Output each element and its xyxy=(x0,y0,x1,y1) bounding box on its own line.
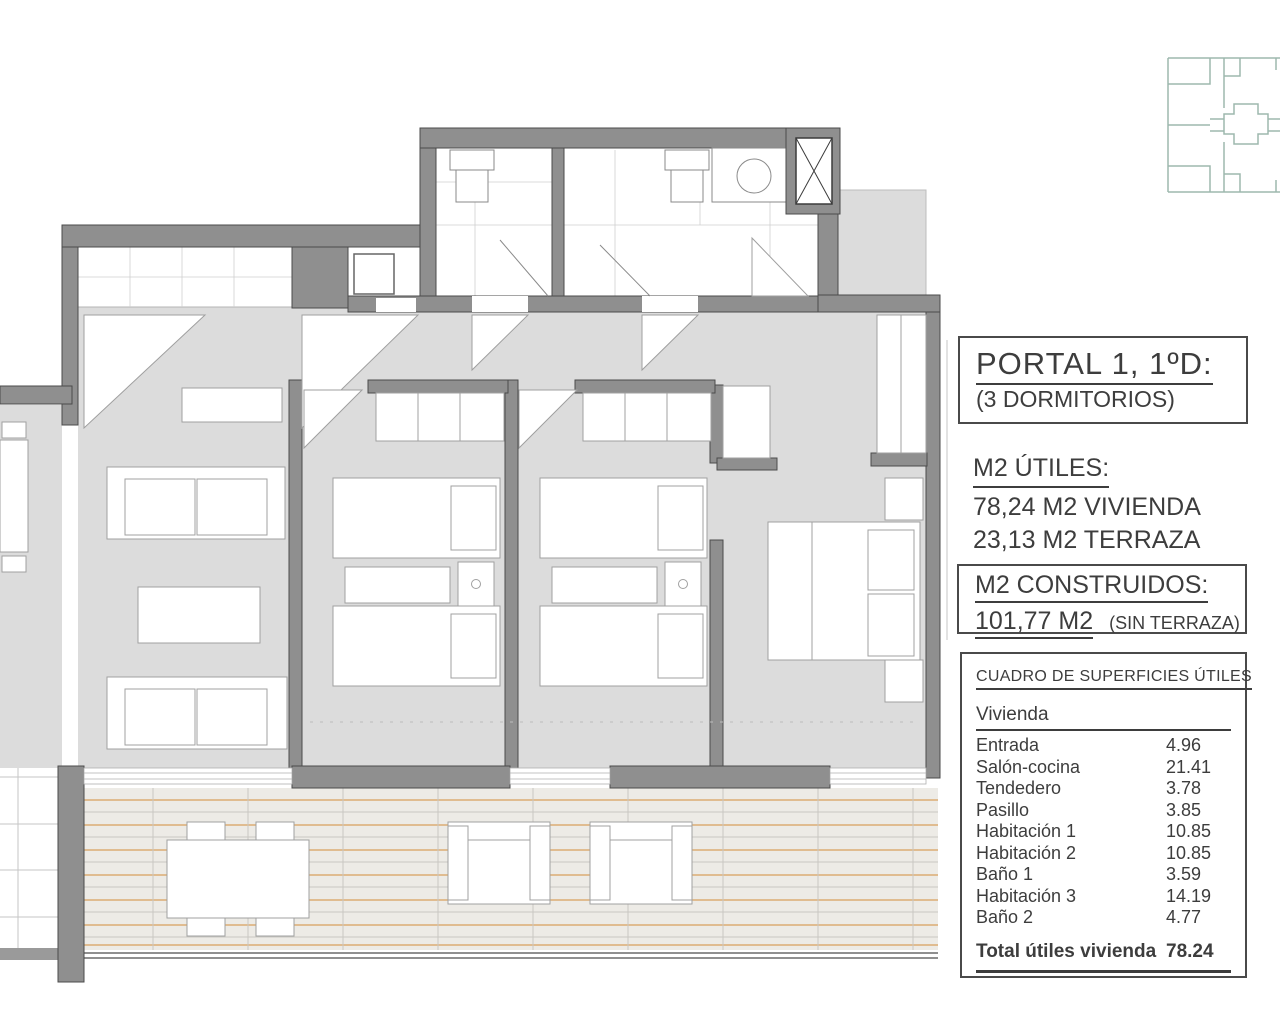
construidos-heading: M2 CONSTRUIDOS: xyxy=(975,571,1208,603)
plan-sheet: PORTAL 1, 1ºD: (3 DORMITORIOS) M2 ÚTILES… xyxy=(0,0,1280,1024)
area-row: Pasillo3.85 xyxy=(976,800,1231,822)
shaft-icon xyxy=(786,128,840,214)
area-row: Baño 24.77 xyxy=(976,907,1231,929)
areas-total-label: Total útiles vivienda xyxy=(976,941,1166,963)
construidos-box: M2 CONSTRUIDOS: 101,77 M2(SIN TERRAZA) xyxy=(957,564,1247,634)
key-plan-icon xyxy=(1168,58,1280,192)
title-box: PORTAL 1, 1ºD: (3 DORMITORIOS) xyxy=(958,336,1248,424)
areas-total-value: 78.24 xyxy=(1166,941,1214,963)
area-row: Baño 13.59 xyxy=(976,864,1231,886)
utiles-terraza: 23,13 M2 TERRAZA xyxy=(973,524,1201,557)
area-row: Habitación 110.85 xyxy=(976,821,1231,843)
utiles-block: M2 ÚTILES: 78,24 M2 VIVIENDA 23,13 M2 TE… xyxy=(973,452,1201,557)
construidos-note: (SIN TERRAZA) xyxy=(1109,613,1240,633)
construidos-value: 101,77 M2 xyxy=(975,607,1093,639)
area-row: Habitación 314.19 xyxy=(976,886,1231,908)
page-subtitle: (3 DORMITORIOS) xyxy=(976,384,1246,414)
area-row: Entrada4.96 xyxy=(976,735,1231,757)
areas-table-box: CUADRO DE SUPERFICIES ÚTILES Vivienda En… xyxy=(960,652,1247,978)
areas-table-group: Vivienda xyxy=(976,704,1231,731)
utiles-vivienda: 78,24 M2 VIVIENDA xyxy=(973,491,1201,524)
areas-table-heading: CUADRO DE SUPERFICIES ÚTILES xyxy=(976,668,1252,690)
terrace-railing xyxy=(84,953,938,958)
area-row: Salón-cocina21.41 xyxy=(976,757,1231,779)
utiles-heading: M2 ÚTILES: xyxy=(973,452,1109,488)
area-row: Tendedero3.78 xyxy=(976,778,1231,800)
page-title: PORTAL 1, 1ºD: xyxy=(976,346,1246,382)
area-row: Habitación 210.85 xyxy=(976,843,1231,865)
areas-total-row: Total útiles vivienda 78.24 xyxy=(976,941,1231,973)
